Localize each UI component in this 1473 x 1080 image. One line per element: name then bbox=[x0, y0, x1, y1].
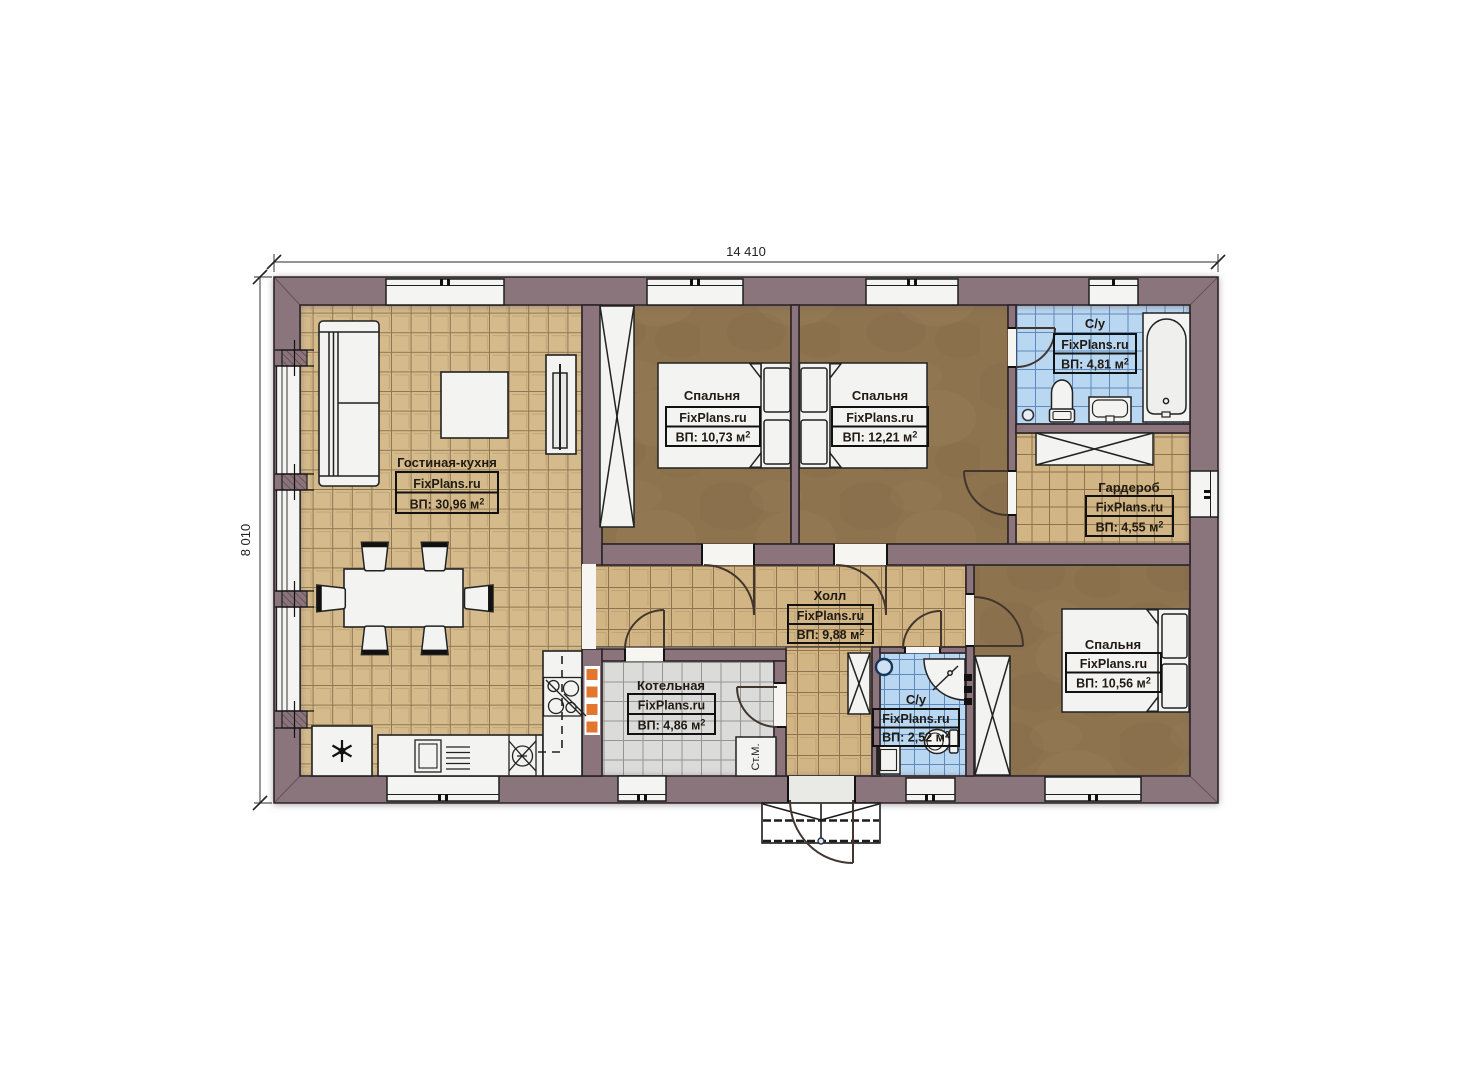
svg-text:С/у: С/у bbox=[906, 692, 927, 707]
svg-text:FixPlans.ru: FixPlans.ru bbox=[1080, 657, 1147, 671]
svg-text:Гостиная-кухня: Гостиная-кухня bbox=[397, 455, 497, 470]
svg-text:Ст.М.: Ст.М. bbox=[750, 743, 762, 770]
svg-text:Котельная: Котельная bbox=[637, 678, 705, 693]
svg-text:FixPlans.ru: FixPlans.ru bbox=[638, 699, 705, 713]
svg-text:14 410: 14 410 bbox=[726, 244, 766, 259]
svg-text:ВП: 10,73 м2: ВП: 10,73 м2 bbox=[676, 430, 751, 445]
svg-text:ВП: 4,55 м2: ВП: 4,55 м2 bbox=[1096, 520, 1164, 535]
svg-text:FixPlans.ru: FixPlans.ru bbox=[679, 411, 746, 425]
svg-text:Гардероб: Гардероб bbox=[1098, 480, 1159, 495]
svg-text:Холл: Холл bbox=[814, 588, 847, 603]
svg-text:Спальня: Спальня bbox=[1085, 637, 1141, 652]
svg-text:ВП: 12,21 м2: ВП: 12,21 м2 bbox=[843, 430, 918, 445]
svg-text:FixPlans.ru: FixPlans.ru bbox=[413, 477, 480, 491]
svg-text:FixPlans.ru: FixPlans.ru bbox=[1061, 338, 1128, 352]
svg-text:8 010: 8 010 bbox=[238, 524, 253, 557]
svg-text:FixPlans.ru: FixPlans.ru bbox=[882, 712, 949, 726]
svg-text:FixPlans.ru: FixPlans.ru bbox=[797, 609, 864, 623]
svg-text:Спальня: Спальня bbox=[852, 388, 908, 403]
svg-text:С/у: С/у bbox=[1085, 316, 1106, 331]
svg-text:Спальня: Спальня bbox=[684, 388, 740, 403]
svg-text:ВП: 9,88 м2: ВП: 9,88 м2 bbox=[797, 627, 865, 642]
svg-text:ВП: 10,56 м2: ВП: 10,56 м2 bbox=[1076, 676, 1151, 691]
svg-text:ВП: 2,52 м2: ВП: 2,52 м2 bbox=[882, 730, 950, 745]
svg-text:ВП: 30,96 м2: ВП: 30,96 м2 bbox=[410, 497, 485, 512]
svg-text:FixPlans.ru: FixPlans.ru bbox=[1096, 501, 1163, 515]
svg-text:ВП: 4,81 м2: ВП: 4,81 м2 bbox=[1061, 357, 1129, 372]
svg-text:ВП: 4,86 м2: ВП: 4,86 м2 bbox=[638, 718, 706, 733]
svg-text:FixPlans.ru: FixPlans.ru bbox=[846, 411, 913, 425]
